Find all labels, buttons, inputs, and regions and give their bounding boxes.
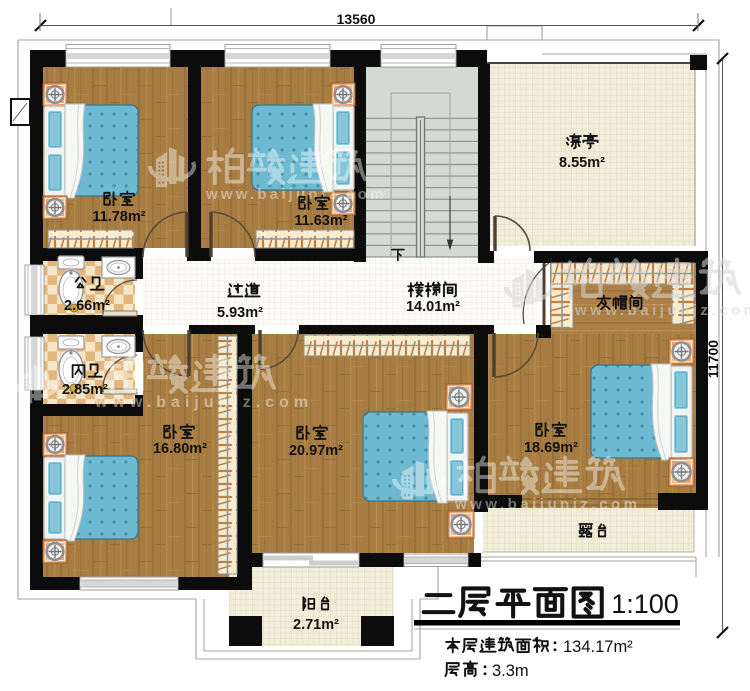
svg-text:14.01m²: 14.01m² [406,299,460,315]
svg-text:www.baijunjz.com: www.baijunjz.com [454,496,640,513]
svg-text:16.80m²: 16.80m² [153,441,207,457]
svg-text::: : [552,635,558,655]
svg-text:3.3m: 3.3m [492,662,529,680]
svg-text:1:100: 1:100 [611,589,679,619]
svg-text:13560: 13560 [337,11,376,27]
svg-text:20.97m²: 20.97m² [289,443,343,459]
svg-text:2.66m²: 2.66m² [64,298,110,314]
svg-text:5.93m²: 5.93m² [217,305,263,321]
svg-text:www.baijunjz.com: www.baijunjz.com [205,186,387,203]
svg-text:2.71m²: 2.71m² [293,617,339,633]
svg-text:11.78m²: 11.78m² [92,209,145,225]
svg-text:11.63m²: 11.63m² [294,213,347,229]
svg-text:www.baijunjz.com: www.baijunjz.com [94,394,313,411]
svg-text:2.85m²: 2.85m² [62,382,108,398]
svg-text:8.55m²: 8.55m² [559,155,605,171]
svg-text::: : [482,659,488,679]
svg-text:134.17m²: 134.17m² [563,638,633,656]
svg-text:18.69m²: 18.69m² [524,440,578,456]
